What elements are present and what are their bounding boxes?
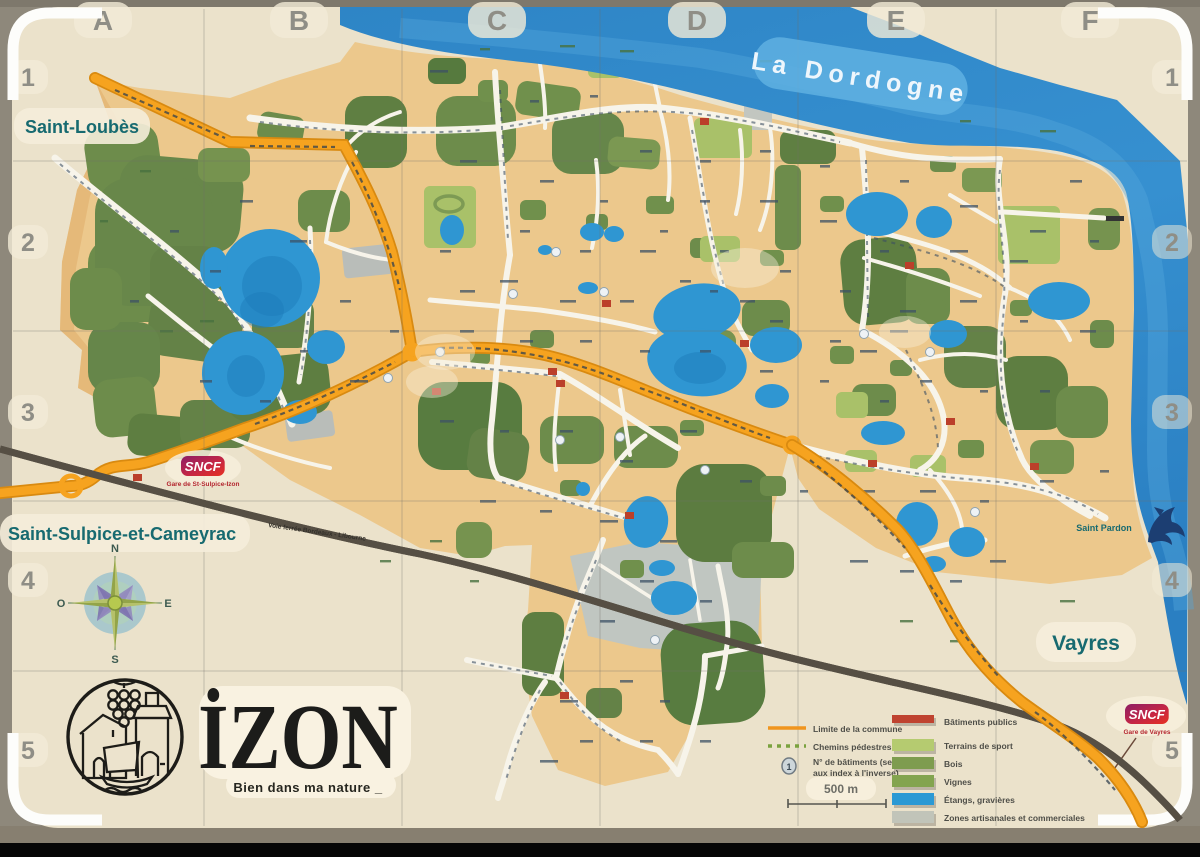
svg-text:2: 2	[21, 229, 35, 257]
svg-text:N: N	[111, 543, 119, 555]
svg-text:1: 1	[1165, 64, 1179, 92]
svg-text:Gare de Vayres: Gare de Vayres	[1124, 729, 1171, 736]
svg-text:Zones artisanales et commercia: Zones artisanales et commerciales	[944, 813, 1085, 823]
svg-text:Saint Pardon: Saint Pardon	[1076, 523, 1132, 533]
svg-text:Saint-Loubès: Saint-Loubès	[25, 117, 139, 137]
svg-text:3: 3	[21, 399, 35, 427]
svg-text:D: D	[687, 5, 707, 36]
svg-text:O: O	[57, 598, 66, 610]
svg-text:Bien dans ma nature _: Bien dans ma nature _	[233, 780, 382, 795]
svg-text:Chemins pédestres: Chemins pédestres	[813, 742, 892, 752]
svg-text:Gare de St-Sulpice-Izon: Gare de St-Sulpice-Izon	[167, 481, 240, 488]
svg-text:Étangs, gravières: Étangs, gravières	[944, 795, 1015, 805]
svg-text:Bois: Bois	[944, 759, 963, 769]
svg-text:Vignes: Vignes	[944, 777, 972, 787]
svg-text:5: 5	[1165, 737, 1179, 765]
svg-text:1: 1	[21, 64, 35, 92]
svg-text:Limite de la commune: Limite de la commune	[813, 724, 903, 734]
svg-text:2: 2	[1165, 229, 1179, 257]
svg-text:4: 4	[1165, 567, 1179, 595]
svg-text:F: F	[1081, 5, 1098, 36]
svg-text:4: 4	[21, 567, 35, 595]
svg-text:3: 3	[1165, 399, 1179, 427]
svg-text:5: 5	[21, 737, 35, 765]
svg-text:SNCF: SNCF	[185, 459, 222, 474]
svg-text:Bâtiments publics: Bâtiments publics	[944, 717, 1017, 727]
svg-text:aux index à l'inverse): aux index à l'inverse)	[813, 768, 899, 778]
svg-text:500 m: 500 m	[824, 782, 858, 796]
svg-text:E: E	[164, 598, 171, 610]
svg-text:C: C	[487, 5, 507, 36]
svg-text:İZON: İZON	[198, 685, 398, 789]
svg-text:Vayres: Vayres	[1052, 632, 1120, 655]
svg-text:SNCF: SNCF	[1129, 707, 1166, 722]
svg-text:E: E	[887, 5, 906, 36]
svg-text:S: S	[111, 654, 118, 666]
svg-text:1: 1	[786, 762, 791, 772]
svg-text:Terrains de sport: Terrains de sport	[944, 741, 1013, 751]
svg-text:Saint-Sulpice-et-Cameyrac: Saint-Sulpice-et-Cameyrac	[8, 524, 236, 544]
svg-text:B: B	[289, 5, 309, 36]
